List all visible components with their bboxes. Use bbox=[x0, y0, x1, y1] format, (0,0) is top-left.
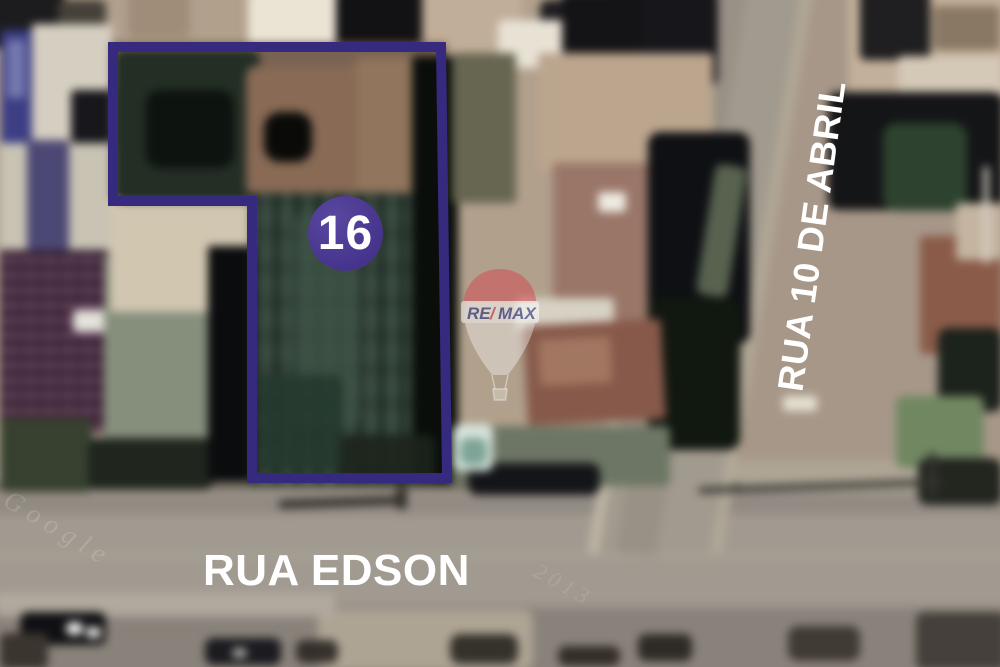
photo-region bbox=[916, 612, 1000, 667]
photo-region bbox=[128, 0, 190, 38]
lot-number-badge: 16 bbox=[308, 196, 383, 271]
photo-region bbox=[7, 40, 25, 98]
street-label-rua-edson: RUA EDSON bbox=[203, 546, 470, 596]
balloon-text-max: MAX bbox=[498, 304, 537, 323]
lot-number: 16 bbox=[318, 206, 373, 261]
photo-region bbox=[450, 634, 518, 664]
photo-region bbox=[0, 554, 1000, 557]
photo-region bbox=[146, 90, 234, 168]
photo-region bbox=[558, 646, 620, 666]
remax-balloon-icon: RE / MAX bbox=[452, 263, 548, 405]
photo-region bbox=[264, 112, 312, 162]
photo-region bbox=[396, 486, 407, 510]
balloon-text-re: RE bbox=[467, 304, 491, 323]
photo-region bbox=[860, 0, 930, 60]
photo-region bbox=[296, 640, 338, 663]
photo-region bbox=[933, 6, 1000, 50]
photo-region bbox=[0, 633, 48, 667]
photo-region bbox=[956, 203, 1000, 260]
photo-region bbox=[88, 438, 212, 490]
photo-region bbox=[460, 438, 487, 465]
balloon-basket bbox=[493, 389, 507, 400]
photo-region bbox=[86, 627, 101, 638]
photo-region bbox=[598, 192, 626, 212]
photo-region bbox=[638, 634, 692, 661]
photo-region bbox=[0, 250, 108, 432]
photo-region bbox=[983, 166, 989, 264]
photo-region bbox=[66, 622, 83, 635]
photo-region bbox=[27, 140, 69, 266]
photo-region bbox=[452, 53, 516, 203]
photo-region bbox=[232, 648, 247, 658]
photo-region bbox=[928, 452, 936, 498]
photo-region bbox=[883, 123, 967, 211]
photo-region bbox=[0, 515, 1000, 605]
photo-region bbox=[73, 310, 107, 332]
photo-region bbox=[340, 435, 435, 483]
photo-region bbox=[258, 375, 343, 470]
photo-region bbox=[538, 336, 612, 386]
property-aerial-map: Google 2013 RE / MAX 16 RUA EDSON RUA 10… bbox=[0, 0, 1000, 667]
photo-region bbox=[562, 0, 642, 58]
photo-region bbox=[0, 418, 92, 492]
photo-region bbox=[788, 626, 860, 661]
